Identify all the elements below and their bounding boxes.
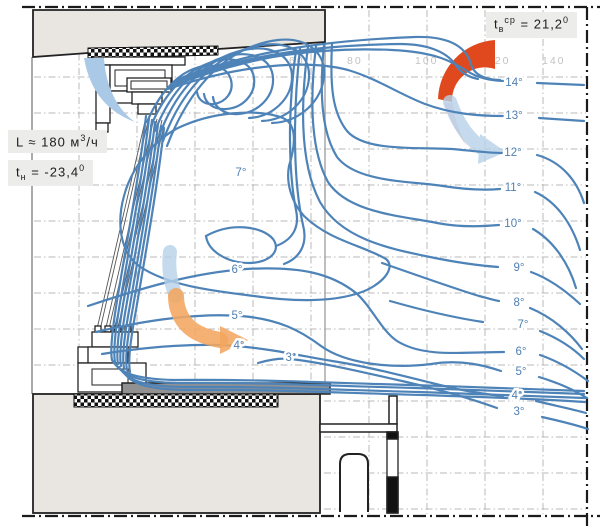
isotherm-label: 12° [504, 147, 521, 159]
flow-rate-text: L ≈ 180 м [16, 134, 80, 149]
insulation-hatch-top [88, 46, 218, 58]
indoor-temp-sup1: ср [504, 15, 516, 25]
indoor-temp-label: tвср = 21,20 [486, 12, 577, 38]
isotherm-label: 3° [514, 406, 525, 418]
isotherm-label: 8° [514, 297, 525, 309]
flow-rate-label: L ≈ 180 м3/ч [8, 130, 107, 153]
outdoor-temp-label: tн = -23,40 [8, 160, 93, 186]
indoor-temp-sub: в [499, 24, 505, 34]
isotherm-label: 13° [505, 110, 522, 122]
isotherm-label: 4° [512, 390, 523, 402]
outdoor-temp-value: = -23,4 [27, 164, 79, 179]
indoor-temp-sup2: 0 [563, 15, 569, 25]
isotherm-label: 11° [505, 182, 522, 194]
insulation-hatch-bottom [74, 394, 278, 407]
isotherm-label: 14° [505, 77, 522, 89]
simulation-canvas: 60 80 100 120 140 [0, 0, 600, 528]
scale-label: 80 [347, 55, 363, 67]
isotherm-label: 7° [236, 167, 247, 179]
isotherm-label: 5° [516, 366, 527, 378]
isotherm-lines [88, 37, 588, 429]
outdoor-temp-sup: 0 [79, 163, 85, 173]
isotherm-label: 9° [514, 262, 525, 274]
thermal-airflow-diagram: 60 80 100 120 140 [0, 0, 600, 528]
isotherm-label: 5° [232, 310, 243, 322]
scale-label: 140 [542, 55, 566, 67]
flow-rate-unit: /ч [86, 134, 98, 149]
radiator [340, 454, 368, 512]
wall-below-window [33, 394, 320, 513]
mixing-arrow-right [450, 102, 506, 164]
isotherm-label: 3° [286, 352, 297, 364]
indoor-temp-value: = 21,2 [516, 16, 563, 31]
isotherm-label: 6° [516, 346, 527, 358]
isotherm-label: 6° [232, 264, 243, 276]
isotherm-label: 10° [504, 218, 521, 230]
isotherm-label: 7° [518, 319, 529, 331]
isotherm-label: 4° [234, 340, 245, 352]
